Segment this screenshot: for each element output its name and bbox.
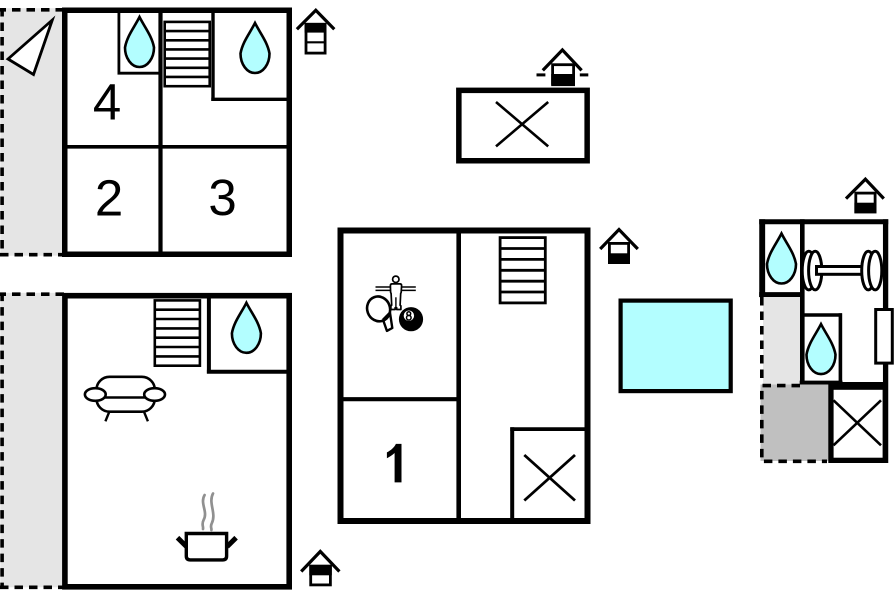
svg-text:2: 2 [95,170,123,227]
svg-text:3: 3 [208,169,236,226]
svg-text:4: 4 [93,74,121,131]
